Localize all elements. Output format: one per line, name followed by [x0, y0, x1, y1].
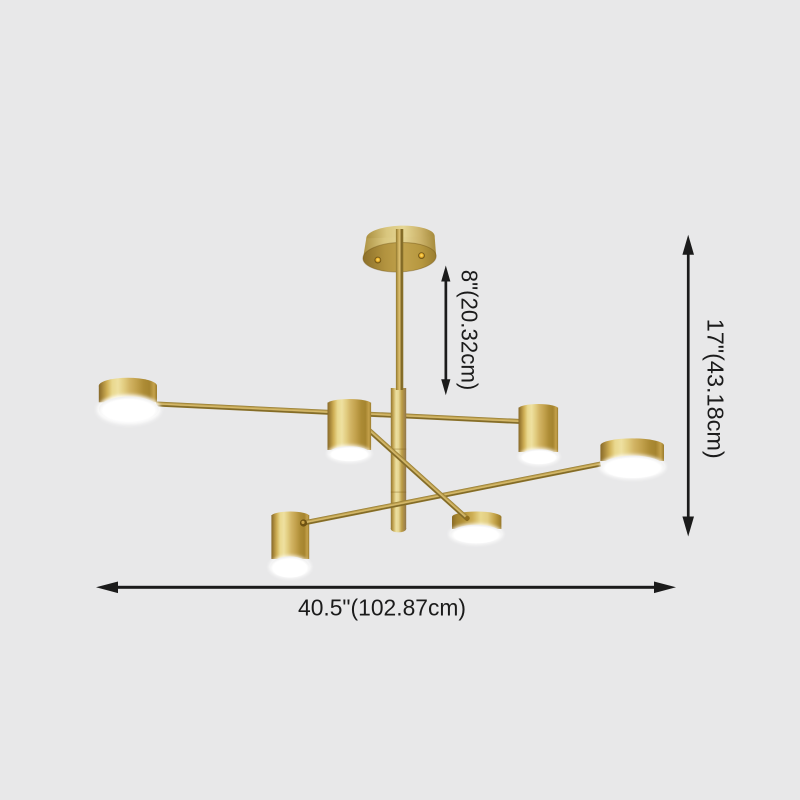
svg-text:8"(20.32cm): 8"(20.32cm)	[457, 270, 483, 391]
svg-text:40.5"(102.87cm): 40.5"(102.87cm)	[298, 594, 466, 620]
svg-text:17"(43.18cm): 17"(43.18cm)	[702, 319, 728, 459]
